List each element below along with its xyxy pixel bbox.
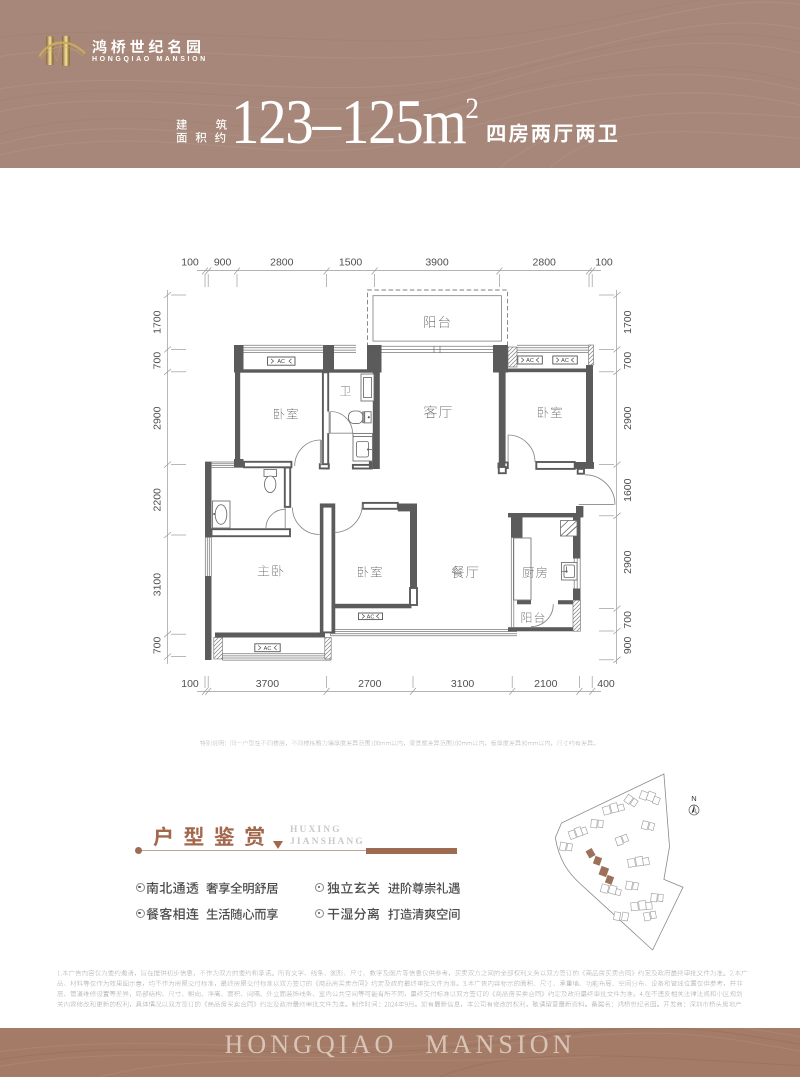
svg-text:2900: 2900 — [152, 406, 164, 430]
svg-text:100: 100 — [181, 678, 199, 690]
svg-text:2900: 2900 — [622, 406, 634, 430]
svg-text:100: 100 — [181, 257, 199, 269]
svg-text:3100: 3100 — [451, 678, 475, 690]
svg-text:900: 900 — [622, 636, 634, 654]
svg-text:3100: 3100 — [152, 573, 164, 597]
svg-text:2800: 2800 — [533, 257, 557, 269]
svg-text:1600: 1600 — [622, 478, 634, 502]
svg-text:900: 900 — [214, 257, 232, 269]
svg-text:AC: AC — [561, 358, 569, 364]
svg-text:2200: 2200 — [152, 488, 164, 512]
svg-text:1700: 1700 — [152, 310, 164, 334]
svg-text:1700: 1700 — [622, 310, 634, 334]
svg-text:2700: 2700 — [358, 678, 382, 690]
svg-text:AC: AC — [277, 359, 285, 365]
svg-text:2900: 2900 — [622, 550, 634, 574]
svg-text:2100: 2100 — [534, 678, 558, 690]
svg-text:1500: 1500 — [339, 257, 363, 269]
svg-text:400: 400 — [597, 678, 615, 690]
svg-text:700: 700 — [152, 636, 164, 654]
svg-text:3900: 3900 — [425, 257, 449, 269]
svg-text:AC: AC — [526, 358, 534, 364]
svg-text:AC: AC — [264, 646, 272, 652]
svg-text:700: 700 — [622, 352, 634, 370]
svg-text:3700: 3700 — [256, 678, 280, 690]
svg-text:2800: 2800 — [270, 257, 294, 269]
svg-text:AC: AC — [367, 614, 375, 620]
svg-text:N: N — [691, 794, 696, 803]
svg-text:700: 700 — [152, 352, 164, 370]
svg-text:100: 100 — [595, 257, 613, 269]
svg-text:700: 700 — [622, 611, 634, 629]
